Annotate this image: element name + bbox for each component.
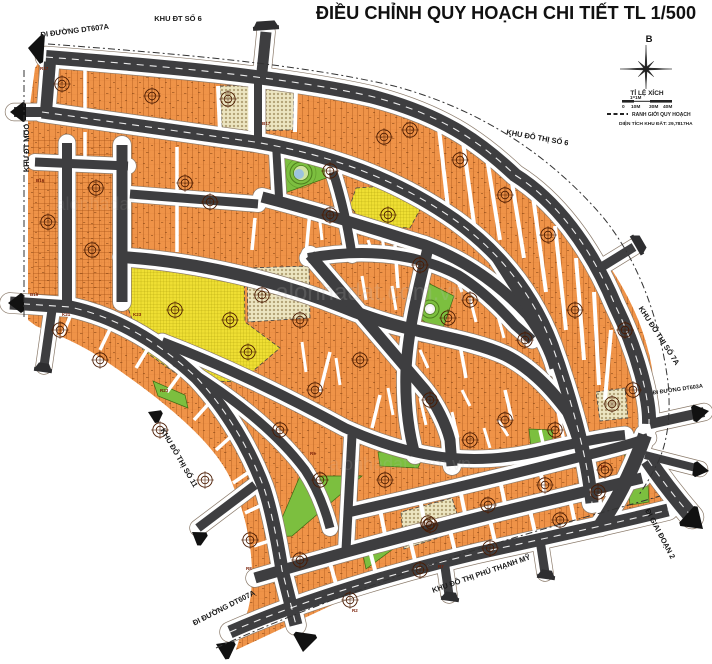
svg-text:R17: R17 — [40, 66, 49, 71]
svg-text:1=1M: 1=1M — [630, 95, 642, 100]
svg-text:30M: 30M — [649, 104, 658, 110]
svg-text:K21: K21 — [62, 312, 71, 317]
svg-text:R2: R2 — [352, 608, 358, 613]
svg-text:40M: 40M — [663, 104, 672, 110]
svg-text:B19: B19 — [30, 292, 39, 297]
svg-text:B17: B17 — [262, 121, 271, 126]
svg-text:10M: 10M — [631, 104, 640, 110]
svg-text:B16: B16 — [36, 178, 45, 183]
svg-text:R5: R5 — [310, 451, 316, 456]
svg-text:K23: K23 — [133, 312, 142, 317]
svg-text:R7: R7 — [438, 564, 444, 569]
svg-text:alonhadat.com.vn: alonhadat.com.vn — [329, 454, 471, 474]
svg-text:KHU ĐT SỐ 6: KHU ĐT SỐ 6 — [154, 13, 202, 23]
svg-text:RANH GIỚI QUY HOẠCH: RANH GIỚI QUY HOẠCH — [632, 110, 691, 118]
svg-text:alonhadat: alonhadat — [55, 194, 134, 214]
svg-text:B: B — [646, 34, 653, 45]
svg-text:R8: R8 — [246, 566, 252, 571]
svg-text:KHU ĐT MOO: KHU ĐT MOO — [22, 124, 31, 172]
svg-text:alonhadat.com.vn: alonhadat.com.vn — [275, 279, 464, 306]
svg-text:0: 0 — [622, 104, 625, 110]
svg-text:ĐIỀU CHỈNH QUY HOẠCH CHI TIẾT: ĐIỀU CHỈNH QUY HOẠCH CHI TIẾT TL 1/500 — [316, 2, 696, 23]
svg-text:T2: T2 — [600, 464, 606, 469]
svg-text:R23: R23 — [160, 388, 169, 393]
